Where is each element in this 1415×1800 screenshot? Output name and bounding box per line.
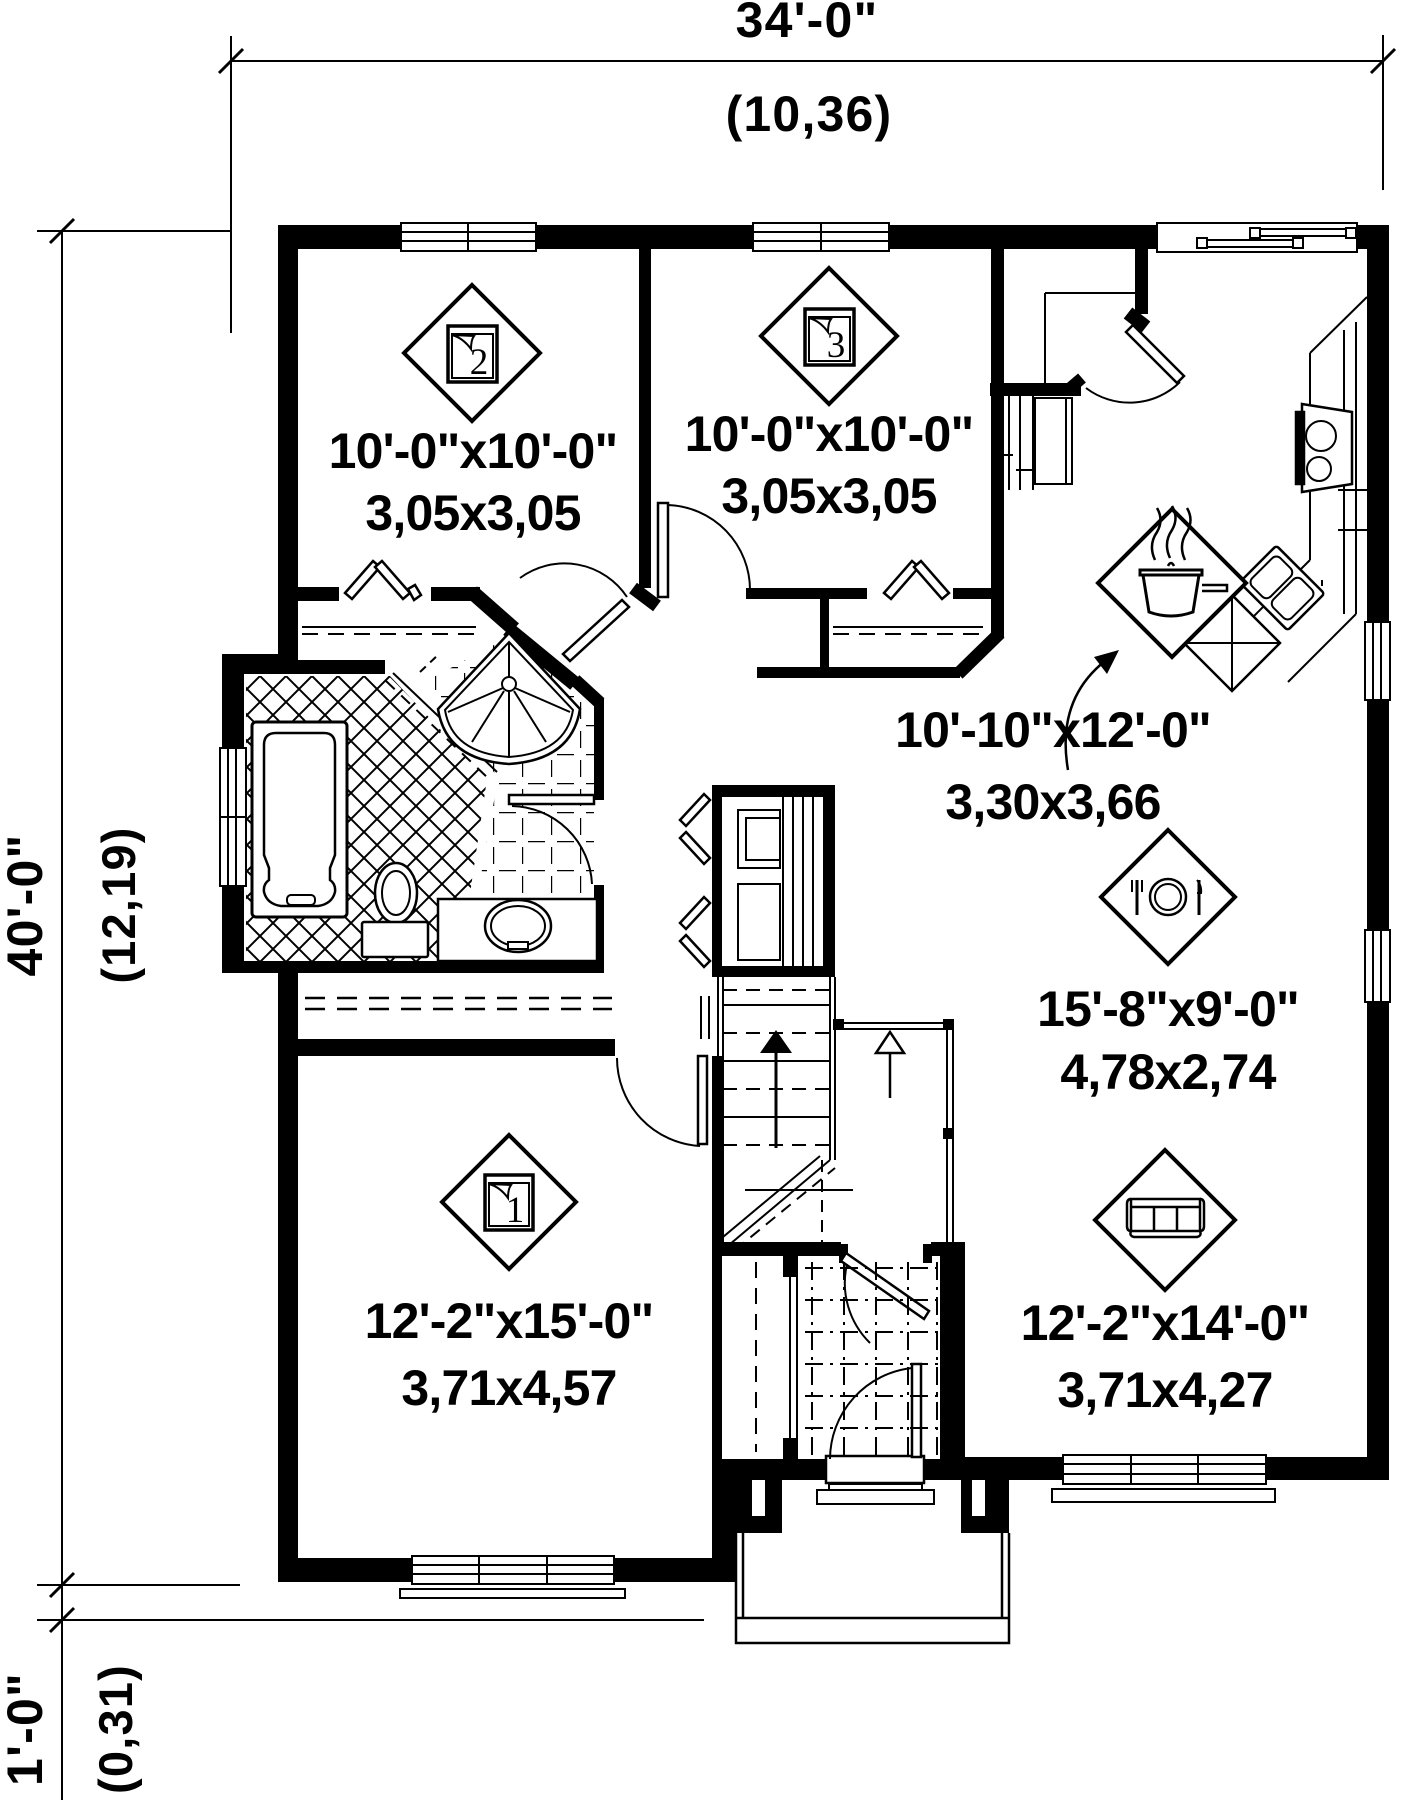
svg-text:1: 1: [506, 1190, 525, 1231]
svg-text:3,71x4,57: 3,71x4,57: [401, 1360, 616, 1416]
svg-text:12'-2"x15'-0": 12'-2"x15'-0": [365, 1293, 654, 1349]
svg-text:3: 3: [827, 325, 846, 366]
svg-text:3,05x3,05: 3,05x3,05: [721, 468, 936, 524]
svg-text:15'-8"x9'-0": 15'-8"x9'-0": [1037, 981, 1299, 1037]
svg-text:12'-2"x14'-0": 12'-2"x14'-0": [1021, 1295, 1310, 1351]
svg-text:4,78x2,74: 4,78x2,74: [1060, 1044, 1276, 1100]
svg-text:1'-0": 1'-0": [0, 1672, 53, 1786]
svg-text:2: 2: [470, 342, 489, 383]
svg-text:3,05x3,05: 3,05x3,05: [365, 485, 580, 541]
svg-text:34'-0": 34'-0": [736, 0, 879, 48]
svg-text:10'-0"x10'-0": 10'-0"x10'-0": [329, 423, 618, 479]
svg-text:3,71x4,27: 3,71x4,27: [1057, 1362, 1272, 1418]
svg-text:40'-0": 40'-0": [0, 834, 53, 977]
svg-text:10'-0"x10'-0": 10'-0"x10'-0": [685, 406, 974, 462]
svg-text:(10,36): (10,36): [726, 86, 893, 142]
svg-text:(12,19): (12,19): [92, 826, 145, 983]
svg-text:10'-10"x12'-0": 10'-10"x12'-0": [895, 702, 1211, 758]
svg-text:3,30x3,66: 3,30x3,66: [945, 774, 1160, 830]
svg-text:(0,31): (0,31): [89, 1664, 142, 1794]
